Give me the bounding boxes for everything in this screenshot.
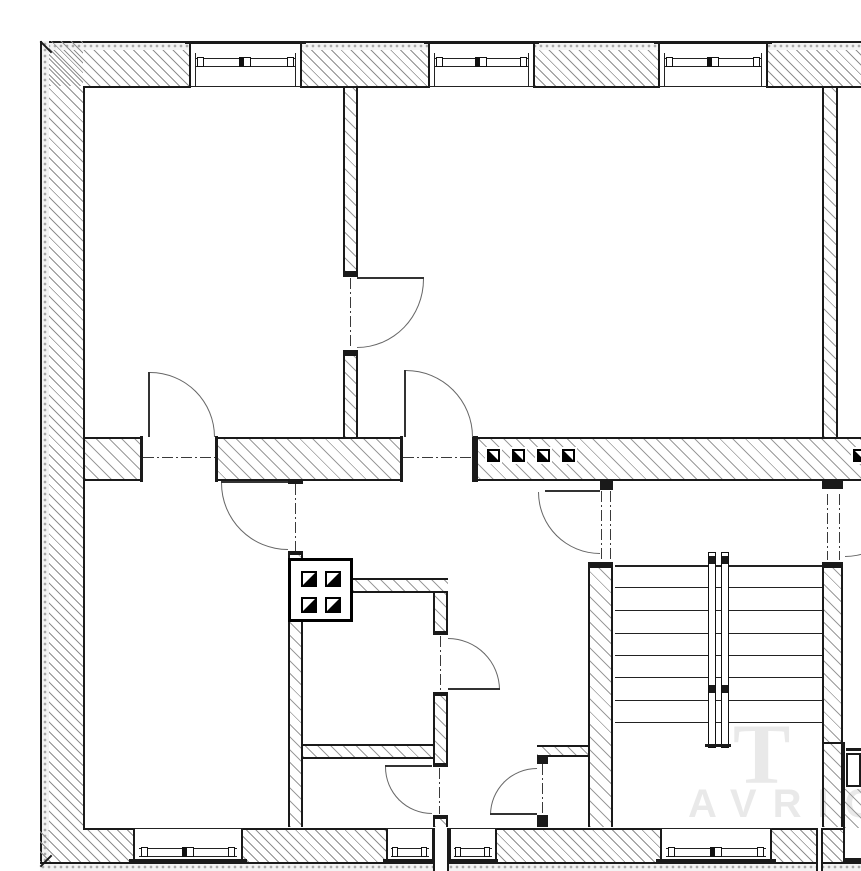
window-mullion (197, 57, 204, 67)
stringer-mark (709, 685, 715, 693)
flue-square-icon (512, 449, 525, 462)
window-mullion (455, 847, 461, 857)
stair-tread (615, 700, 822, 701)
door-centerline (610, 491, 611, 561)
window-mullion (392, 847, 398, 857)
window-mullion (753, 57, 760, 67)
door-jamb (140, 436, 143, 482)
corner-window-box (843, 828, 861, 861)
door-centerline (439, 768, 440, 814)
window-sill-bar (424, 41, 539, 44)
window-mullion (287, 57, 294, 67)
window-mullion (436, 57, 443, 67)
neighbor-door-box (846, 753, 861, 787)
door-swing-arc (448, 638, 500, 690)
stair-tread (615, 610, 822, 611)
wall-hatch (49, 41, 83, 871)
window-sill-bar (656, 859, 776, 862)
neighbor-wall-line (822, 742, 845, 744)
door-jamb (433, 692, 448, 696)
door-centerline (350, 278, 351, 349)
wall-stair-right-stub (822, 481, 843, 489)
window-mullion (710, 847, 722, 857)
door-swing-arc (221, 483, 288, 550)
wall-bathroom-top (353, 578, 448, 593)
door-opening-left (143, 435, 215, 483)
wall-storage-left-stub (537, 757, 548, 764)
wall-slot (816, 828, 823, 871)
stringer-mark (705, 744, 718, 747)
door-leaf (404, 370, 406, 437)
door-jamb (288, 551, 303, 555)
wall-storage-top (537, 745, 590, 757)
stair-stringer (721, 552, 729, 748)
floor-plan-canvas: T AVRIO (0, 0, 861, 871)
stair-tread (615, 565, 822, 567)
wall-bathroom-right-lower (433, 692, 448, 767)
flue-square-icon (301, 597, 317, 613)
neighbor-wall-hatch (845, 789, 861, 828)
door-centerline (295, 484, 296, 551)
window-mullion (239, 57, 251, 67)
window-mullion (141, 847, 148, 857)
stringer-mark (722, 556, 728, 564)
window-frame-line (428, 86, 535, 87)
window-mullion (520, 57, 527, 67)
window-sill-bar (446, 859, 498, 862)
flue-square-icon (325, 597, 341, 613)
door-centerline (827, 494, 828, 560)
wall-insulation-band (42, 41, 49, 871)
window-mullion (421, 847, 427, 857)
door-leaf (545, 490, 600, 492)
door-jamb (343, 350, 358, 356)
window-frame-line (386, 828, 434, 829)
door-swing-arc (406, 370, 473, 437)
door-jamb (215, 436, 218, 482)
window-frame-line (449, 828, 497, 829)
door-jamb (433, 631, 448, 635)
door-leaf (490, 813, 537, 815)
exterior-wall-left (40, 41, 85, 871)
flue-box (288, 558, 353, 622)
door-centerline (403, 457, 472, 458)
door-swing-arc (538, 492, 600, 554)
door-jamb (343, 271, 358, 277)
door-swing-arc (490, 768, 537, 815)
wall-stair-right (822, 562, 843, 827)
window-mullion (182, 847, 194, 857)
window-sill-bar (843, 858, 861, 862)
wall-cap (588, 562, 613, 568)
door-centerline (143, 457, 215, 458)
window-mullion (228, 847, 235, 857)
flue-square-icon (537, 449, 550, 462)
window-sill-bar (654, 41, 772, 44)
door-leaf (385, 765, 432, 767)
window-frame-line (189, 86, 302, 87)
stair-stringer (708, 552, 716, 748)
door-swing-arc (385, 767, 432, 814)
stringer-mark (709, 556, 715, 564)
door-swing-arc (357, 279, 424, 348)
flue-square-icon (325, 571, 341, 587)
stringer-mark (722, 685, 728, 693)
door-leaf (448, 688, 500, 690)
wall-stair-left-stub (600, 481, 613, 490)
wall-cap (822, 562, 843, 568)
wall-slot (433, 828, 449, 871)
watermark-glyph: T (733, 704, 790, 804)
wall-top-right-partition (822, 88, 838, 437)
window-frame-line (660, 828, 772, 829)
wall-insulation-band (40, 864, 861, 871)
window-mullion (484, 847, 490, 857)
stair-tread (615, 677, 822, 678)
stair-tread (615, 722, 822, 723)
stringer-mark (718, 744, 731, 747)
flue-square-icon (301, 571, 317, 587)
window-sill-bar (383, 859, 435, 862)
neighbor-wall-line (846, 748, 861, 751)
window-sill-bar (129, 859, 247, 862)
window-mullion (475, 57, 487, 67)
door-centerline (440, 636, 441, 691)
flue-square-icon (487, 449, 500, 462)
door-leaf (357, 277, 424, 279)
door-leaf (221, 481, 288, 483)
wall-stair-left (588, 562, 613, 827)
door-swing-arc (150, 372, 215, 437)
door-leaf (148, 372, 150, 437)
door-centerline (601, 491, 602, 561)
door-jamb (472, 436, 478, 482)
door-jamb (433, 763, 448, 767)
wall-bathroom-bottom (303, 744, 433, 759)
door-centerline (839, 494, 840, 560)
door-centerline (542, 764, 543, 814)
stair-tread (615, 633, 822, 634)
door-opening-hall (403, 435, 472, 483)
stair-tread (615, 655, 822, 656)
wall-room1-room2 (343, 88, 358, 437)
door-jamb (400, 436, 403, 482)
door-jamb (433, 815, 448, 819)
window-sill-bar (185, 41, 306, 44)
window-mullion (668, 847, 675, 857)
stair-tread (615, 587, 822, 588)
door-swing-arc (845, 495, 861, 557)
flue-square-icon (853, 449, 861, 462)
window-mullion (666, 57, 673, 67)
window-frame-line (133, 828, 243, 829)
flue-square-icon (562, 449, 575, 462)
window-mullion (757, 847, 764, 857)
window-frame-line (658, 86, 768, 87)
wall-storage-left-stub (537, 815, 548, 827)
window-mullion (707, 57, 719, 67)
wall-bathroom-right-upper (433, 593, 448, 635)
